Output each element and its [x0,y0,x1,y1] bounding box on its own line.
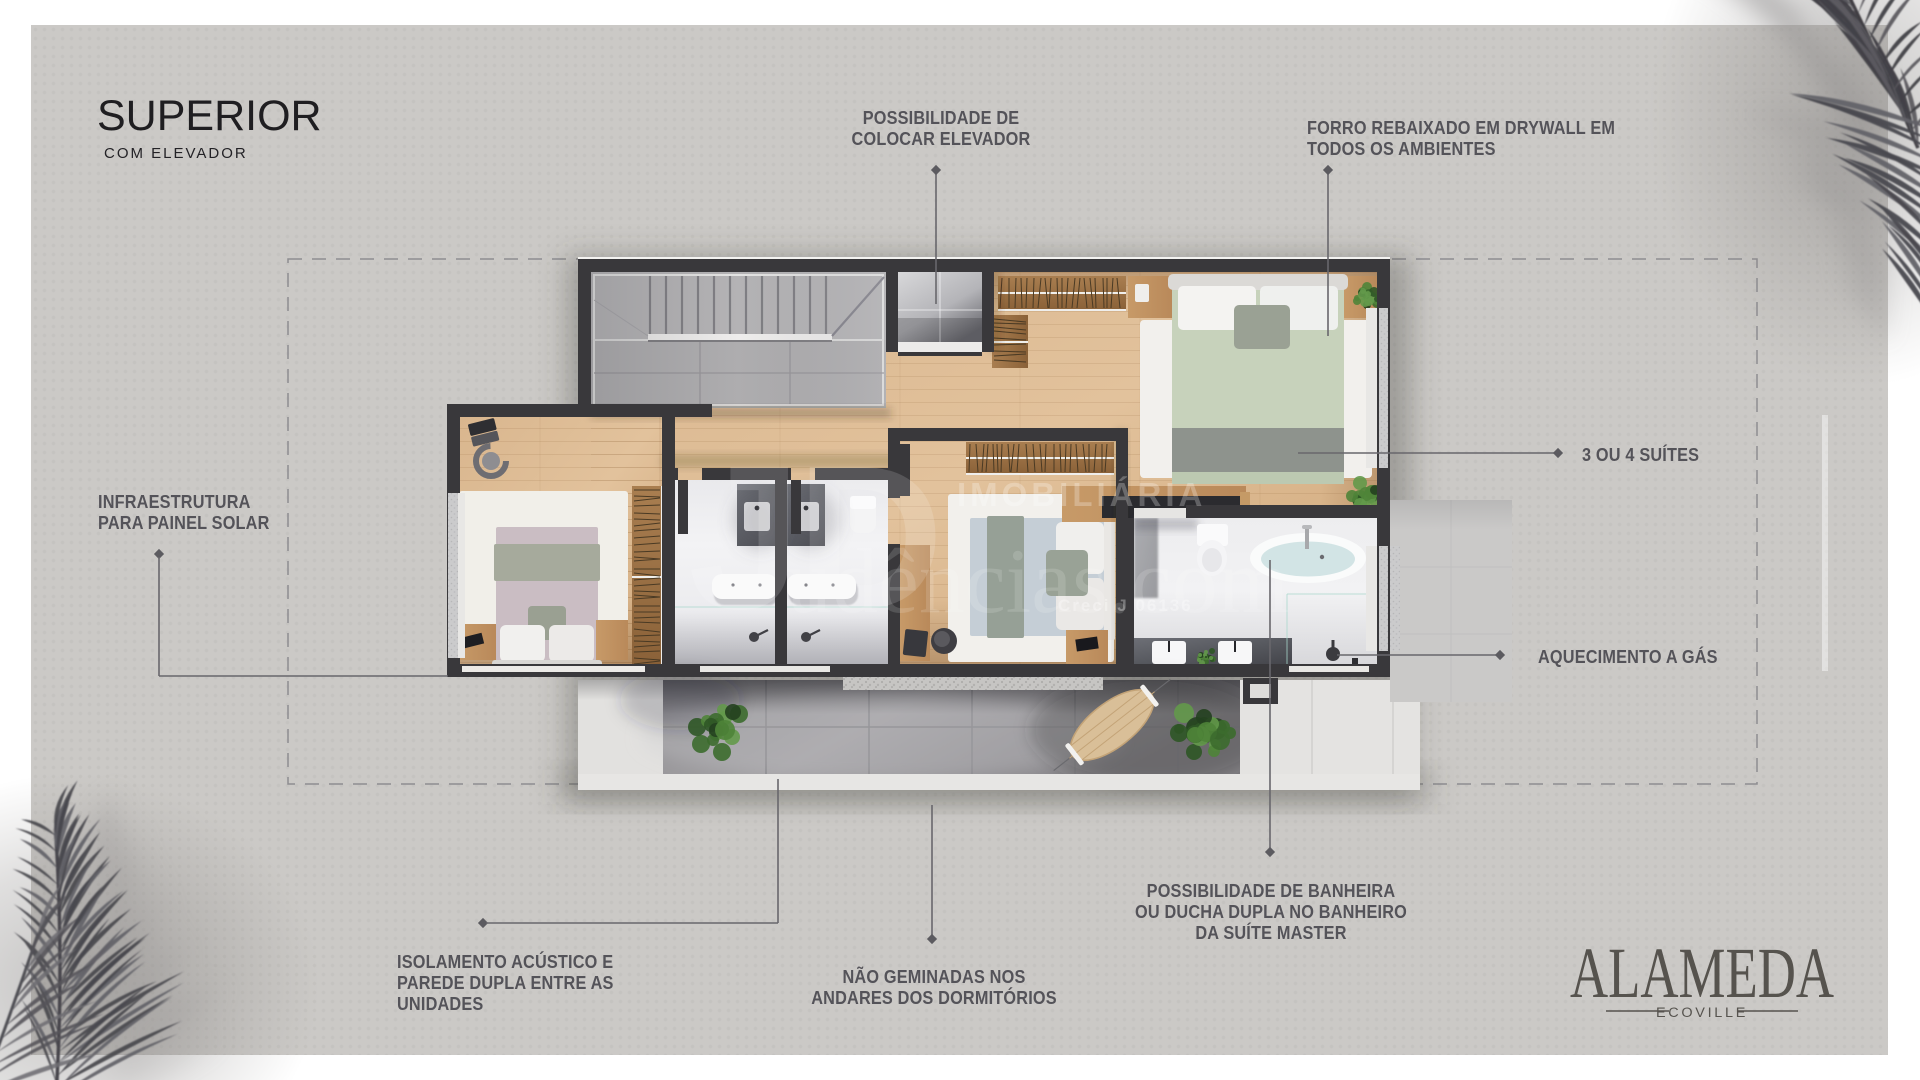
svg-text:IMOBILIÁRIA: IMOBILIÁRIA [957,476,1206,513]
svg-text:ECOVILLE: ECOVILLE [1656,1005,1748,1020]
svg-text:Creci J 06136: Creci J 06136 [1058,596,1193,615]
svg-text:udências.com: udências.com [786,530,1289,632]
svg-text:ALAMEDA: ALAMEDA [1570,933,1834,1013]
